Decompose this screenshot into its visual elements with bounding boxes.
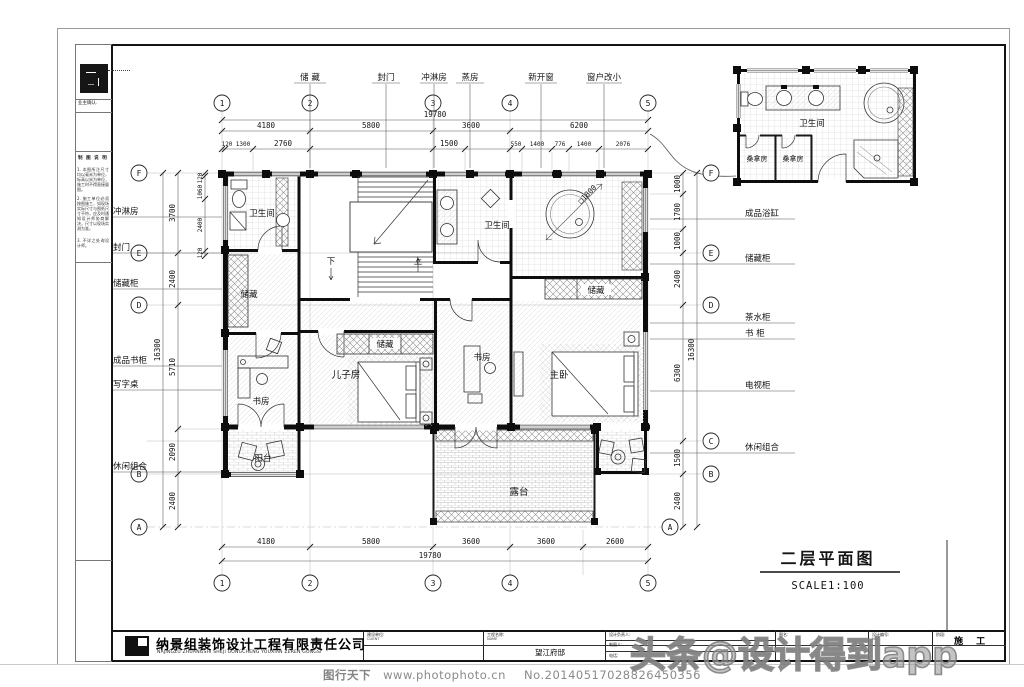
footer-url: www.photophoto.cn <box>383 668 506 682</box>
callout-top-steam-room: 蒸房 <box>461 72 478 83</box>
dim: 2400 <box>673 269 682 288</box>
dim: 6300 <box>673 363 682 382</box>
sink-icon <box>277 214 290 227</box>
room-wc2-label: 卫生间 <box>484 220 510 231</box>
callout-top-shower-room: 冲淋房 <box>421 72 447 83</box>
dim: 1500 <box>440 139 459 148</box>
phone-label: 电话: <box>609 653 618 659</box>
room-wc1-label: 卫生间 <box>249 208 275 219</box>
toilet-icon <box>741 92 748 106</box>
dim: 2760 <box>274 139 293 148</box>
dim: 3600 <box>462 537 481 546</box>
client-sublabel: CLIENT <box>367 637 379 641</box>
axis-top-5: 5 <box>646 99 651 108</box>
dim: 4180 <box>257 121 276 130</box>
callout-left-leisure-set: 休闲组合 <box>113 461 148 472</box>
room-storage2-label: 储藏 <box>376 339 394 350</box>
dim: 5800 <box>362 121 381 130</box>
toutiao-watermark: 头条@设计得到app <box>630 633 1024 681</box>
dim: 3600 <box>462 121 481 130</box>
axis-bottom-2: 2 <box>308 579 313 588</box>
sink-icon <box>809 91 824 106</box>
axis-top-3: 3 <box>431 99 436 108</box>
dim-total-left: 16300 <box>153 338 162 361</box>
dim: 5710 <box>168 357 177 376</box>
room-study2-label: 书房 <box>473 352 490 363</box>
detail-wc-label: 卫生间 <box>799 118 825 129</box>
axis-right-D: D <box>709 301 714 310</box>
axis-left-A: A <box>137 523 142 532</box>
sink-icon <box>777 91 792 106</box>
dim: 120 <box>197 172 204 183</box>
room-storage1-label: 储藏 <box>240 289 258 300</box>
axis-left-E: E <box>137 249 142 258</box>
detail-sauna2-label: 桑拿房 <box>783 154 804 163</box>
dim: 2600 <box>606 537 625 546</box>
callout-right-bookcase: 书 柜 <box>745 328 765 339</box>
room-study1-label: 书房 <box>252 396 269 407</box>
sink-icon <box>441 224 454 237</box>
room-balcony-label: 阳台 <box>254 453 271 464</box>
axis-top-4: 4 <box>508 99 513 108</box>
dim: 1400 <box>530 141 545 148</box>
room-kid-label: 儿子房 <box>332 369 361 381</box>
dim: 1500 <box>673 448 682 467</box>
kid-bed <box>348 356 432 426</box>
company-logo <box>125 636 149 656</box>
axis-bottom-3: 3 <box>431 579 436 588</box>
axis-bottom-4: 4 <box>508 579 513 588</box>
room-master-label: 主卧 <box>549 369 569 381</box>
drawing-title: 二层平面图 SCALE1:100 <box>760 540 947 630</box>
callout-top-window-reduced: 窗户改小 <box>587 72 622 83</box>
axis-bottom-1: 1 <box>220 579 225 588</box>
floor-plan-sheet: 业主确认. 制 图 说 明 1. 本图所注尺寸均以毫米为单位，标高以米为单位，施… <box>0 0 1024 687</box>
axis-left-F: F <box>137 169 142 178</box>
director-label: 设计负责人: <box>609 632 630 638</box>
dim: 776 <box>555 141 566 148</box>
callout-right-tv-cabinet: 电视柜 <box>745 380 771 391</box>
room-storage3-label: 储藏 <box>587 285 605 296</box>
callout-left-shower-room: 冲淋房 <box>113 206 139 217</box>
axis-right-B: B <box>709 470 714 479</box>
callout-right-leisure-set: 休闲组合 <box>745 442 780 453</box>
dim: 3700 <box>168 203 177 222</box>
callout-left-storage-cabinet: 储藏柜 <box>113 278 139 289</box>
callout-top-storage: 储 藏 <box>300 72 320 83</box>
dim: 1700 <box>673 202 682 221</box>
dim: 2400 <box>168 269 177 288</box>
footer-brand: 图行天下 <box>323 668 371 682</box>
callout-top-sealed-door: 封门 <box>377 72 394 83</box>
dim: 120 <box>222 141 233 148</box>
axis-right-F: F <box>709 169 714 178</box>
axis-right-C: C <box>709 437 714 446</box>
dim: 4180 <box>257 537 276 546</box>
dim: 5800 <box>362 537 381 546</box>
dim: 550 <box>511 141 522 148</box>
dim-total-bottom: 19780 <box>419 551 442 560</box>
axis-right-E: E <box>709 249 714 258</box>
dim: 1000 <box>673 231 682 250</box>
dim: 1300 <box>236 141 251 148</box>
dim: 2400 <box>168 491 177 510</box>
axis-bottom-5: 5 <box>646 579 651 588</box>
dim: 1060 <box>197 184 204 199</box>
dim: 2090 <box>168 442 177 461</box>
callout-right-storage-cabinet: 储藏柜 <box>745 253 771 264</box>
callout-left-sealed-door: 封门 <box>113 242 130 253</box>
callout-left-writing-desk: 写字桌 <box>113 379 139 390</box>
room-terrace-label: 露台 <box>509 486 528 498</box>
axis-top-1: 1 <box>220 99 225 108</box>
dim: 2400 <box>673 491 682 510</box>
dim: 1400 <box>577 141 592 148</box>
callout-top-new-window: 新开窗 <box>528 72 554 83</box>
stair-up-label: 上 <box>414 257 423 267</box>
dim: 6200 <box>570 121 589 130</box>
project-sublabel: NAME <box>487 637 497 641</box>
company-name-en: NAJINGZU ZHUANGSHI SHEJI GONGCHENG YOUXI… <box>157 650 387 655</box>
dim: 3600 <box>537 537 556 546</box>
callout-right-tea-cabinet: 茶水柜 <box>745 312 771 323</box>
staircase <box>329 177 433 297</box>
detail-sauna1-label: 桑拿房 <box>747 154 768 163</box>
floor-plan-drawing: 1 2 3 4 5 1 2 3 4 5 F E D B A F E D C B … <box>0 0 1024 687</box>
detail-leader-curve <box>650 134 736 176</box>
axis-right-A: A <box>668 523 673 532</box>
drawing-title-text: 二层平面图 <box>780 549 875 568</box>
drafter-label: 制图人: <box>609 642 622 648</box>
stair-down-label: 下 <box>327 257 336 267</box>
dim-total-right: 16300 <box>687 338 696 361</box>
project-name-value: 望江府邸 <box>500 647 600 658</box>
callout-left-bookcase: 成品书柜 <box>113 355 148 366</box>
axis-left-D: D <box>137 301 142 310</box>
callout-right-bathtub: 成品浴缸 <box>745 208 780 219</box>
dim: 1000 <box>673 174 682 193</box>
sink-icon <box>441 197 454 210</box>
dim-total-top: 19780 <box>424 110 447 119</box>
dim: 2400 <box>197 217 204 232</box>
drawing-scale-text: SCALE1:100 <box>791 580 864 592</box>
dim: 2076 <box>616 141 631 148</box>
